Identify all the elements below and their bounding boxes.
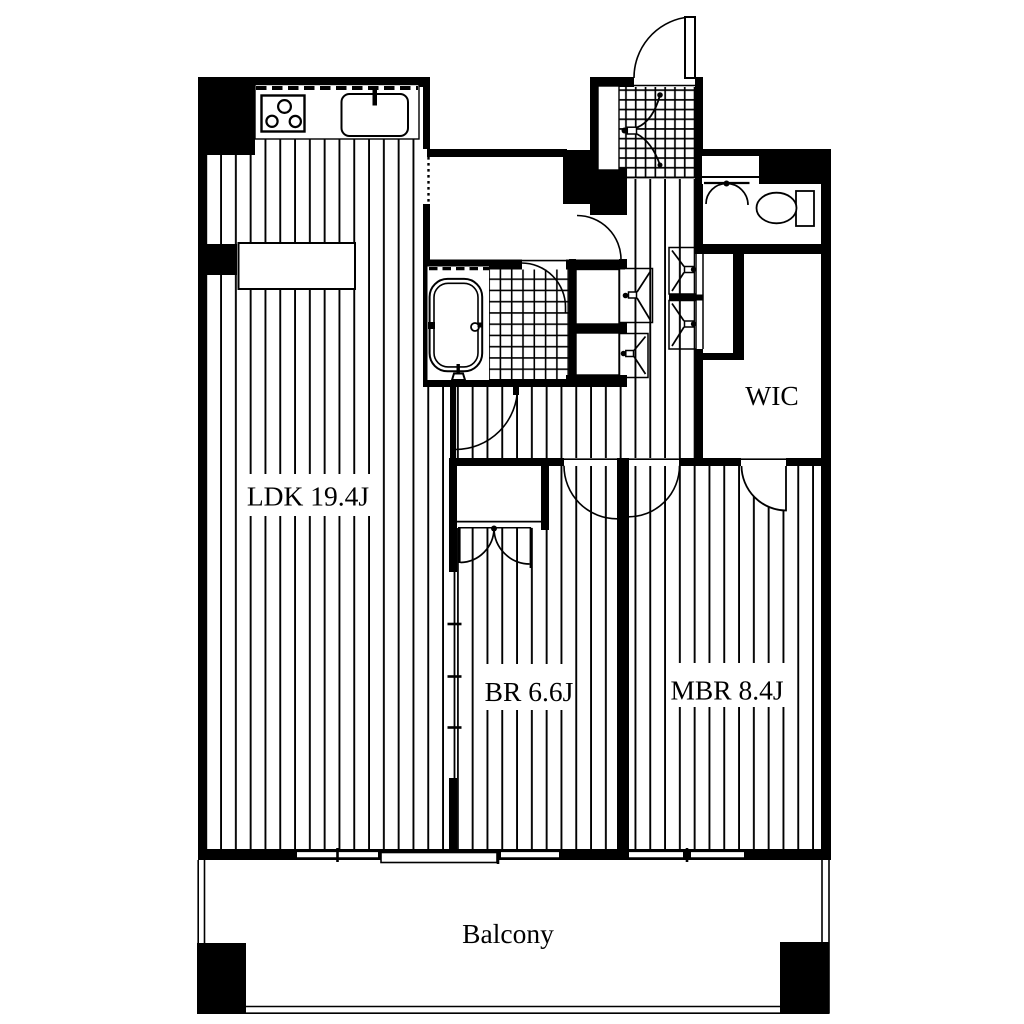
- svg-text:MBR 8.4J: MBR 8.4J: [670, 675, 783, 706]
- svg-text:BR 6.6J: BR 6.6J: [485, 676, 574, 707]
- svg-text:LDK 19.4J: LDK 19.4J: [247, 481, 370, 512]
- svg-text:WIC: WIC: [745, 380, 798, 411]
- svg-text:Balcony: Balcony: [462, 918, 554, 949]
